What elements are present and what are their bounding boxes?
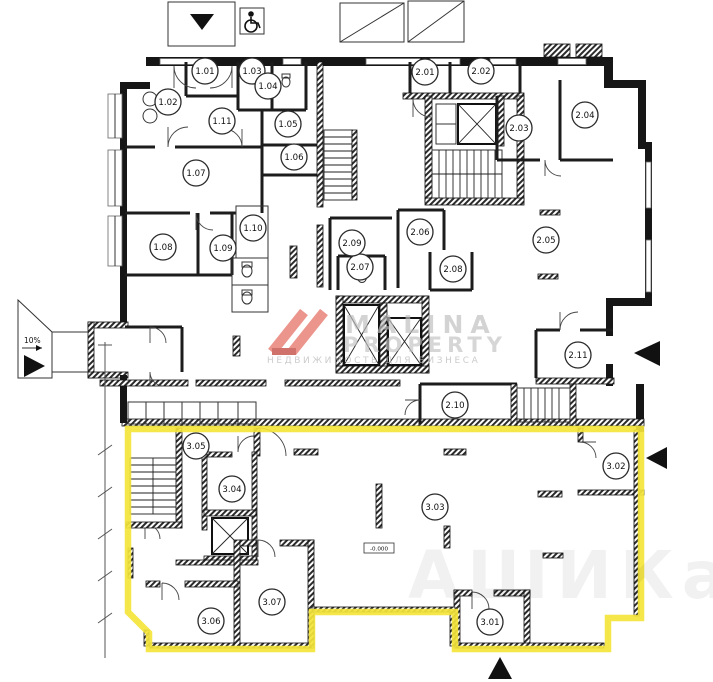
brand-watermark: MALINA PROPERTY НЕДВИЖИМОСТЬ ДЛЯ БИЗНЕСА <box>267 310 507 366</box>
room-label-1-09: 1.09 <box>210 235 236 261</box>
wheelchair-icon <box>245 11 260 32</box>
svg-text:1.10: 1.10 <box>243 224 262 234</box>
ramp-arrow-left <box>24 355 45 377</box>
svg-text:1.11: 1.11 <box>212 117 231 127</box>
room-label-1-01: 1.01 <box>192 58 218 84</box>
brand-line2: PROPERTY <box>343 333 507 357</box>
room-label-2-08: 2.08 <box>440 256 466 282</box>
svg-text:2.04: 2.04 <box>575 111 594 121</box>
svg-text:3.03: 3.03 <box>425 503 444 513</box>
stairs-upper-core <box>432 150 502 198</box>
elevator-shaft-lower <box>212 518 248 554</box>
room-label-2-09: 2.09 <box>339 230 365 256</box>
entrance-arrow-right-upper <box>634 341 660 366</box>
svg-text:3.02: 3.02 <box>606 462 625 472</box>
entrance-arrow-right-lower <box>646 447 667 469</box>
room-label-1-02: 1.02 <box>155 89 181 115</box>
svg-text:2.10: 2.10 <box>445 401 464 411</box>
stairs-mid-left <box>324 130 357 200</box>
room-label-2-04: 2.04 <box>572 102 598 128</box>
svg-text:3.01: 3.01 <box>480 618 499 628</box>
level-mark: -0.000 <box>364 543 394 553</box>
room-label-1-07: 1.07 <box>183 160 209 186</box>
svg-text:2.05: 2.05 <box>536 236 555 246</box>
room-label-2-07: 2.07 <box>347 254 373 280</box>
room-label-3-06: 3.06 <box>198 608 224 634</box>
room-label-3-07: 3.07 <box>259 589 285 615</box>
room-label-1-04: 1.04 <box>255 73 281 99</box>
entrance-canopy <box>168 2 264 46</box>
svg-text:-0.000: -0.000 <box>370 547 388 553</box>
svg-text:1.01: 1.01 <box>195 67 214 77</box>
room-label-2-05: 2.05 <box>533 227 559 253</box>
svg-text:3.04: 3.04 <box>222 485 241 495</box>
svg-text:2.03: 2.03 <box>509 124 528 134</box>
floor-plan-drawing: -0.000 10% 1.011.021.031.041.051.061.071… <box>0 0 713 682</box>
svg-text:2.09: 2.09 <box>342 239 361 249</box>
room-label-1-05: 1.05 <box>275 111 301 137</box>
svg-text:2.11: 2.11 <box>568 351 587 361</box>
room-label-2-06: 2.06 <box>407 219 433 245</box>
svg-text:1.02: 1.02 <box>158 98 177 108</box>
entrance-arrow-bottom <box>488 657 512 679</box>
stairs-lower-left <box>130 458 176 514</box>
svg-text:2.02: 2.02 <box>471 67 490 77</box>
entrance-arrow-top <box>190 14 214 30</box>
stair-elevator-core-upper <box>403 93 524 205</box>
room-label-1-11: 1.11 <box>209 108 235 134</box>
svg-text:3.05: 3.05 <box>186 442 205 452</box>
elevator-shaft-upper <box>458 104 496 144</box>
svg-text:1.07: 1.07 <box>186 169 205 179</box>
room-label-1-10: 1.10 <box>240 215 266 241</box>
svg-text:1.06: 1.06 <box>284 153 303 163</box>
svg-text:1.03: 1.03 <box>242 67 261 77</box>
svg-text:1.04: 1.04 <box>258 82 277 92</box>
svg-text:1.09: 1.09 <box>213 244 232 254</box>
room-label-2-10: 2.10 <box>442 392 468 418</box>
section-break-line <box>98 342 112 658</box>
svg-text:2.08: 2.08 <box>443 265 462 275</box>
brand-tagline: НЕДВИЖИМОСТЬ ДЛЯ БИЗНЕСА <box>267 356 480 366</box>
room-label-3-02: 3.02 <box>603 453 629 479</box>
ramp-slope-label: 10% <box>24 336 41 345</box>
svg-text:3.06: 3.06 <box>201 617 220 627</box>
room-label-1-08: 1.08 <box>150 234 176 260</box>
room-label-1-06: 1.06 <box>281 144 307 170</box>
svg-text:2.07: 2.07 <box>350 263 369 273</box>
svg-text:1.05: 1.05 <box>278 120 297 130</box>
room-label-3-05: 3.05 <box>183 433 209 459</box>
floor-plan-canvas: -0.000 10% 1.011.021.031.041.051.061.071… <box>0 0 713 682</box>
svg-text:1.08: 1.08 <box>153 243 172 253</box>
faint-watermark: АШИКаН <box>408 537 713 614</box>
room-label-3-03: 3.03 <box>422 494 448 520</box>
room-label-3-04: 3.04 <box>219 476 245 502</box>
room-label-2-01: 2.01 <box>412 59 438 85</box>
room-label-2-03: 2.03 <box>506 115 532 141</box>
balconies-top <box>340 1 602 57</box>
room-label-2-11: 2.11 <box>565 342 591 368</box>
room-label-2-02: 2.02 <box>468 58 494 84</box>
svg-text:3.07: 3.07 <box>262 598 281 608</box>
svg-text:2.01: 2.01 <box>415 68 434 78</box>
svg-text:2.06: 2.06 <box>410 228 429 238</box>
